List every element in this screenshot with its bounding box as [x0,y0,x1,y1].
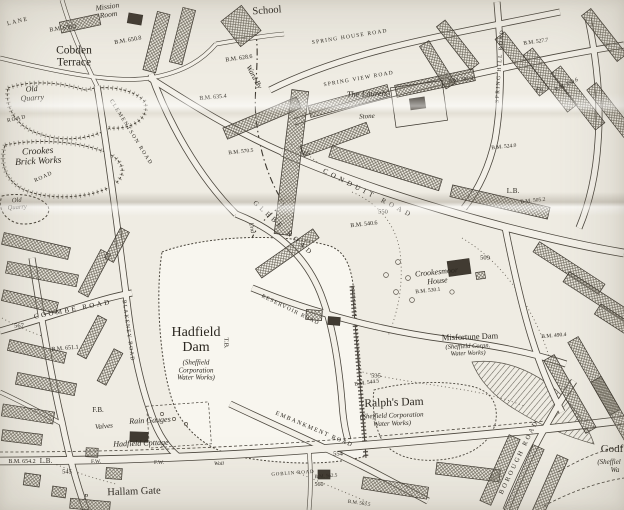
map-drawing [0,0,624,510]
os-map-scan: LANEMission RoomSchoolB.M. 659.2B.M. 650… [0,0,624,510]
